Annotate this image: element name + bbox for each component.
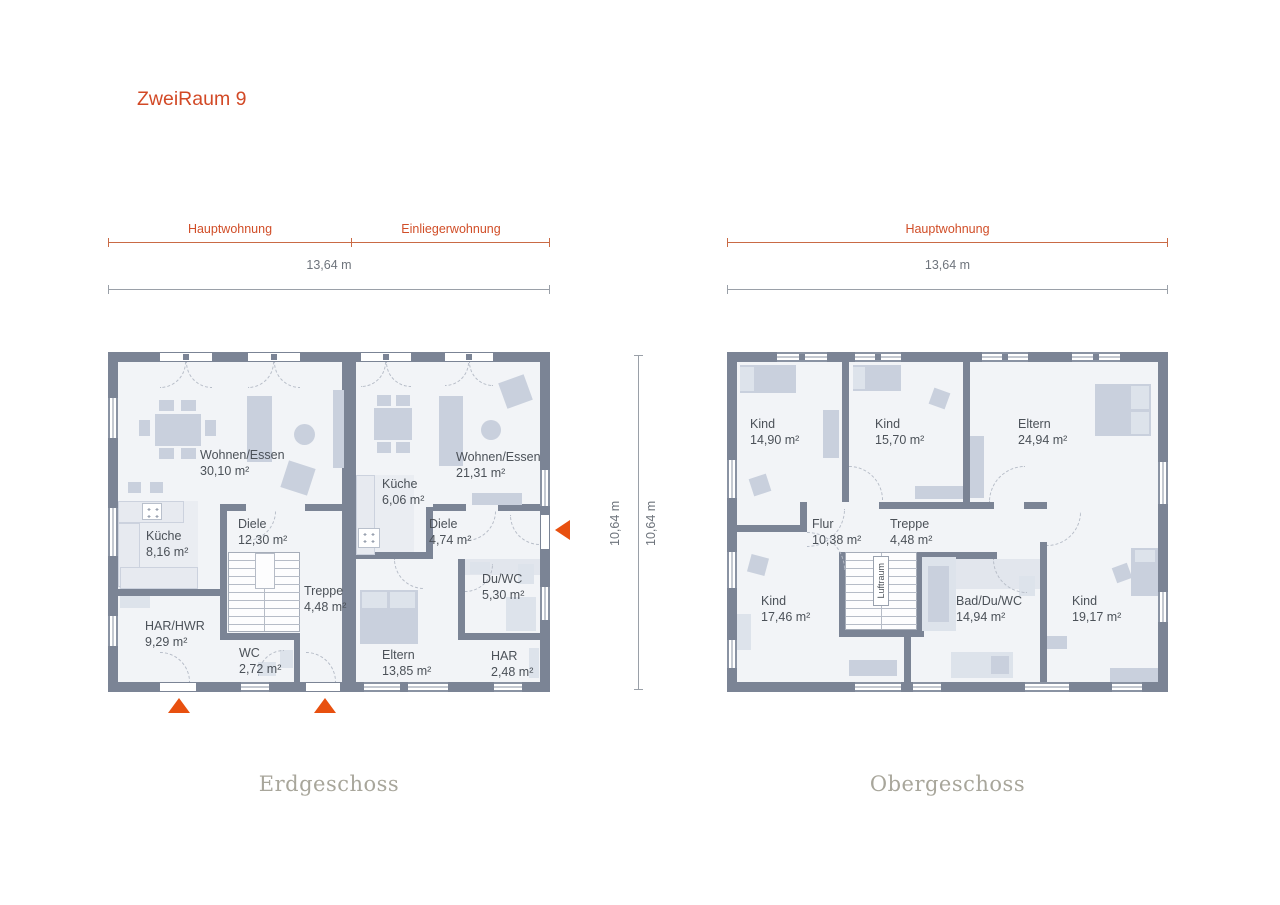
- room-label-diele-elw: Diele4,74 m²: [429, 516, 471, 548]
- door-arc: [445, 362, 469, 386]
- furniture-shelf: [120, 596, 150, 608]
- furniture-dining-table: [155, 414, 201, 446]
- dimension-line: [727, 289, 1168, 290]
- door-arc: [274, 362, 300, 388]
- window: [855, 682, 901, 692]
- window-post: [875, 354, 881, 360]
- dimension-label-einliegerwohnung: Einliegerwohnung: [352, 222, 550, 236]
- door-opening: [541, 515, 549, 549]
- furniture-armchair: [280, 460, 315, 495]
- room-label-kind-2: Kind15,70 m²: [875, 416, 924, 448]
- wall-segment: [220, 633, 300, 640]
- door-opening: [306, 683, 340, 691]
- wall-segment: [342, 352, 356, 692]
- bed-pillow: [1131, 412, 1149, 434]
- furniture-shelf: [915, 486, 963, 499]
- window: [408, 682, 448, 692]
- window: [108, 508, 118, 556]
- dimension-tick: [727, 285, 728, 294]
- door-arc: [248, 362, 274, 388]
- wall-segment: [1158, 352, 1168, 692]
- room-label-kueche-elw: Küche6,06 m²: [382, 476, 424, 508]
- wall-segment: [458, 633, 540, 640]
- door-arc: [186, 362, 212, 388]
- wall-segment: [433, 504, 466, 511]
- dimension-tick: [634, 355, 643, 356]
- window: [540, 470, 550, 506]
- void-label-luftraum: Luftraum: [873, 556, 889, 606]
- door-arc: [1047, 512, 1081, 546]
- furniture-chair: [159, 448, 174, 459]
- vertical-dimension-label-left: 10,64 m: [608, 483, 622, 563]
- entrance-arrow: [314, 698, 336, 713]
- room-label-kind-3: Kind17,46 m²: [761, 593, 810, 625]
- floorplan-obergeschoss: Luftraum Kind14,90 m²: [727, 352, 1168, 692]
- entrance-arrow: [168, 698, 190, 713]
- window: [727, 552, 737, 588]
- room-label-bad-du-wc: Bad/Du/WC14,94 m²: [956, 593, 1022, 625]
- furniture-shelf: [1047, 636, 1067, 649]
- door-post: [183, 354, 189, 360]
- dimension-tick: [108, 285, 109, 294]
- window: [108, 398, 118, 438]
- dimension-tick: [108, 238, 109, 247]
- window-post: [1002, 354, 1008, 360]
- furniture-chair: [150, 482, 163, 493]
- wall-segment: [1024, 502, 1047, 509]
- furniture-armchair: [1112, 563, 1133, 584]
- door-arc: [849, 466, 883, 500]
- staircase: [228, 552, 300, 632]
- furniture-chair: [181, 448, 196, 459]
- room-label-wohnen-essen-elw: Wohnen/Essen21,31 m²: [456, 449, 541, 481]
- window: [1112, 682, 1142, 692]
- window: [913, 682, 941, 692]
- wall-segment: [879, 502, 964, 509]
- furniture-wardrobe: [823, 410, 839, 458]
- bed-pillow: [740, 367, 754, 391]
- vertical-dimension-label-right: 10,64 m: [644, 483, 658, 563]
- wall-segment: [839, 630, 919, 637]
- room-label-wohnen-essen: Wohnen/Essen30,10 m²: [200, 447, 285, 479]
- furniture-side-table: [294, 424, 315, 445]
- stair-landing: [255, 553, 275, 589]
- dimension-total-label: 13,64 m: [727, 258, 1168, 272]
- floorplan-sheet: ZweiRaum 9 Hauptwohnung Einliegerwohnung…: [0, 0, 1280, 905]
- furniture-armchair: [929, 388, 951, 410]
- furniture-wardrobe: [970, 436, 984, 498]
- room-label-wc: WC2,72 m²: [239, 645, 281, 677]
- dimension-total-label: 13,64 m: [108, 258, 550, 272]
- furniture-chair: [128, 482, 141, 493]
- window: [1158, 462, 1168, 504]
- dimension-tick: [549, 285, 550, 294]
- wall-segment: [305, 504, 344, 511]
- wall-segment: [963, 362, 970, 502]
- window: [1158, 592, 1168, 622]
- door-opening: [160, 683, 196, 691]
- door-arc: [361, 362, 386, 387]
- floorplan-erdgeschoss: Wohnen/Essen30,10 m² Küche8,16 m² Diele1…: [108, 352, 550, 692]
- door-arc: [510, 515, 540, 545]
- dimension-label-hauptwohnung: Hauptwohnung: [727, 222, 1168, 236]
- dimension-line: [108, 242, 550, 243]
- door-post: [383, 354, 389, 360]
- wall-segment: [294, 640, 300, 682]
- wall-segment: [842, 362, 849, 502]
- bed-pillow: [1131, 386, 1149, 409]
- dimension-label-hauptwohnung: Hauptwohnung: [108, 222, 352, 236]
- room-label-flur: Flur10,38 m²: [812, 516, 861, 548]
- bathtub-inner: [928, 566, 949, 622]
- window: [241, 682, 269, 692]
- room-label-kueche: Küche8,16 m²: [146, 528, 188, 560]
- dimension-tick: [549, 238, 550, 247]
- dimension-tick: [351, 238, 352, 247]
- furniture-armchair: [749, 474, 772, 497]
- window: [494, 682, 522, 692]
- furniture-chair: [139, 420, 150, 436]
- window: [108, 616, 118, 646]
- door-arc: [160, 652, 190, 682]
- room-label-eltern-og: Eltern24,94 m²: [1018, 416, 1067, 448]
- furniture-chair: [181, 400, 196, 411]
- window: [1025, 682, 1069, 692]
- wall-segment: [220, 504, 227, 640]
- room-label-har: HAR2,48 m²: [491, 648, 533, 680]
- kitchen-counter: [120, 567, 198, 589]
- floor-caption-obergeschoss: Obergeschoss: [727, 772, 1168, 796]
- room-label-du-wc: Du/WC5,30 m²: [482, 571, 524, 603]
- room-label-treppe-og: Treppe4,48 m²: [890, 516, 932, 548]
- door-arc: [989, 466, 1025, 502]
- wall-segment: [118, 589, 220, 596]
- furniture-dining-table: [374, 408, 412, 440]
- wall-segment: [1040, 542, 1047, 682]
- room-label-diele: Diele12,30 m²: [238, 516, 287, 548]
- stove: [142, 503, 162, 520]
- door-arc: [306, 652, 336, 682]
- furniture-shelf: [737, 614, 751, 650]
- bed-pillow: [362, 592, 387, 608]
- furniture-sideboard: [333, 390, 344, 468]
- dimension-line: [727, 242, 1168, 243]
- room-label-kind-4: Kind19,17 m²: [1072, 593, 1121, 625]
- door-arc: [394, 559, 424, 589]
- plan-title: ZweiRaum 9: [137, 88, 246, 111]
- furniture-sideboard: [472, 493, 522, 505]
- wall-segment: [458, 559, 465, 633]
- wall-segment: [964, 502, 994, 509]
- room-label-treppe: Treppe4,48 m²: [304, 583, 346, 615]
- bed-pillow: [1135, 550, 1155, 562]
- dimension-tick: [634, 689, 643, 690]
- wall-segment: [800, 502, 807, 532]
- furniture-armchair: [747, 554, 769, 576]
- wall-segment: [498, 504, 540, 511]
- room-label-eltern-eg: Eltern13,85 m²: [382, 647, 431, 679]
- window: [727, 460, 737, 498]
- furniture-chair: [377, 442, 391, 453]
- bath-sink: [991, 656, 1009, 674]
- room-label-kind-1: Kind14,90 m²: [750, 416, 799, 448]
- door-post: [271, 354, 277, 360]
- dimension-line: [638, 355, 639, 690]
- furniture-chair: [396, 395, 410, 406]
- dimension-tick: [727, 238, 728, 247]
- furniture-chair: [377, 395, 391, 406]
- dimension-tick: [1167, 285, 1168, 294]
- window: [364, 682, 400, 692]
- furniture-chair: [205, 420, 216, 436]
- furniture-chair: [159, 400, 174, 411]
- window: [540, 587, 550, 620]
- wall-segment: [727, 682, 1168, 692]
- door-arc: [386, 362, 411, 387]
- furniture-chair: [396, 442, 410, 453]
- stove: [358, 528, 380, 548]
- dimension-line: [108, 289, 550, 290]
- furniture-armchair: [498, 374, 533, 409]
- door-post: [466, 354, 472, 360]
- bed-pillow: [390, 592, 415, 608]
- door-arc: [160, 362, 186, 388]
- room-label-har-hwr: HAR/HWR9,29 m²: [145, 618, 205, 650]
- door-arc: [469, 362, 493, 386]
- window-post: [1093, 354, 1099, 360]
- window: [727, 640, 737, 668]
- furniture-dresser: [1110, 668, 1158, 682]
- wall-segment: [904, 637, 911, 682]
- furniture-dresser: [849, 660, 897, 676]
- entrance-arrow: [555, 520, 570, 540]
- window-post: [799, 354, 805, 360]
- furniture-side-table: [481, 420, 501, 440]
- dimension-tick: [1167, 238, 1168, 247]
- wall-segment: [737, 525, 800, 532]
- bed-pillow: [853, 367, 865, 389]
- floor-caption-erdgeschoss: Erdgeschoss: [108, 772, 550, 796]
